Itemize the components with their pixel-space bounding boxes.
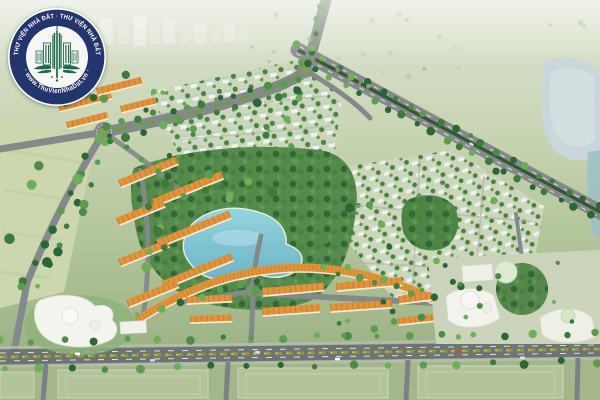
tree	[408, 104, 414, 110]
commercial-complex	[428, 250, 600, 344]
tree	[34, 363, 43, 372]
tree	[408, 290, 415, 297]
car	[335, 358, 340, 361]
tree	[437, 119, 444, 126]
tree	[510, 157, 517, 164]
tree	[374, 334, 379, 339]
tree	[347, 73, 355, 81]
tree	[341, 333, 346, 338]
tree	[441, 181, 446, 186]
tree	[139, 157, 144, 162]
tree	[254, 279, 260, 285]
tree	[160, 90, 165, 95]
tree	[174, 363, 181, 370]
tree	[521, 162, 529, 170]
tree	[237, 281, 245, 289]
tree	[155, 168, 161, 174]
tree	[288, 143, 294, 149]
tree	[42, 257, 52, 267]
tree	[469, 150, 475, 156]
car	[520, 357, 525, 360]
tree	[176, 155, 181, 160]
tree	[151, 89, 157, 95]
tree	[371, 325, 378, 332]
tree	[501, 333, 509, 341]
tree	[381, 299, 387, 305]
tree	[426, 127, 435, 136]
tree	[145, 203, 152, 210]
aerial-render: THƯ VIỆN NHÀ ĐẤT · THƯ VIỆN NHÀ ĐẤT · ww…	[0, 0, 600, 400]
tree	[415, 121, 420, 126]
tree	[431, 293, 439, 301]
tree	[141, 262, 151, 272]
tree	[79, 200, 88, 209]
tree	[136, 365, 145, 374]
tree	[417, 193, 422, 198]
tree	[443, 263, 448, 268]
tree	[150, 109, 156, 115]
tree	[199, 294, 206, 301]
tree	[397, 110, 405, 118]
tree	[217, 287, 224, 294]
tree	[366, 84, 371, 89]
tree	[122, 71, 130, 79]
tree	[280, 80, 288, 88]
tree	[569, 203, 577, 211]
tree	[458, 282, 463, 287]
tree	[268, 187, 278, 197]
tree	[283, 116, 290, 123]
tree	[69, 364, 76, 371]
tree	[385, 362, 391, 368]
tree	[53, 247, 62, 256]
tree	[385, 107, 391, 113]
tree	[251, 286, 261, 296]
tree	[72, 174, 83, 185]
tree	[207, 362, 214, 369]
tree	[202, 187, 209, 194]
tree	[68, 190, 74, 196]
tree	[197, 114, 203, 120]
tree	[566, 189, 572, 195]
shophouse-row	[190, 315, 232, 324]
tree	[556, 261, 560, 265]
tree	[476, 285, 482, 291]
tree	[27, 180, 37, 190]
tree	[95, 159, 101, 165]
tree	[501, 296, 506, 301]
tree	[107, 138, 113, 144]
tree	[158, 305, 166, 313]
tree	[140, 129, 147, 136]
tree	[356, 90, 362, 96]
tree	[62, 336, 69, 343]
tree	[159, 121, 167, 129]
tree	[419, 110, 426, 117]
tree	[485, 157, 493, 165]
tree	[219, 183, 225, 189]
tree	[35, 284, 40, 289]
tree	[167, 153, 172, 158]
tree	[495, 273, 501, 279]
tree	[263, 132, 270, 139]
tree	[490, 197, 497, 204]
tree	[559, 197, 564, 202]
tree	[326, 75, 332, 81]
tree	[214, 110, 220, 116]
tree	[4, 234, 15, 245]
tree	[381, 70, 385, 74]
tree	[170, 108, 176, 114]
tree	[34, 161, 43, 170]
tree	[94, 135, 101, 142]
tree	[345, 203, 354, 212]
tree	[358, 81, 362, 85]
tree	[321, 264, 327, 270]
tree	[292, 158, 297, 163]
tree	[263, 124, 269, 130]
tree	[146, 248, 153, 255]
tree	[380, 276, 387, 283]
tree	[198, 101, 206, 109]
car	[455, 350, 460, 353]
tree	[143, 107, 148, 112]
tree	[164, 173, 171, 180]
round-tower	[495, 261, 517, 283]
tree	[135, 312, 140, 317]
tree	[394, 283, 400, 289]
tree	[493, 149, 500, 156]
tree	[463, 315, 468, 320]
tree	[530, 184, 536, 190]
tree	[387, 244, 393, 250]
tree	[176, 176, 186, 186]
tree	[190, 125, 197, 132]
tree	[477, 303, 483, 309]
tree	[391, 318, 398, 325]
tree	[378, 221, 385, 228]
tree	[418, 314, 425, 321]
tree	[102, 123, 110, 131]
tree	[248, 335, 254, 341]
tree	[345, 319, 350, 324]
tree	[121, 133, 130, 142]
tree	[64, 223, 70, 229]
tree	[536, 174, 542, 180]
tree	[58, 207, 65, 214]
tree	[366, 201, 373, 208]
tree	[356, 274, 364, 282]
tree	[444, 137, 451, 144]
tree	[492, 168, 499, 175]
tree	[28, 339, 34, 345]
tree	[501, 168, 507, 174]
tree	[591, 329, 598, 336]
tree	[457, 66, 461, 70]
tree	[153, 227, 163, 237]
watermark-logo: THƯ VIỆN NHÀ ĐẤT · THƯ VIỆN NHÀ ĐẤT · ww…	[7, 7, 107, 107]
car	[75, 353, 80, 356]
tree	[186, 336, 195, 345]
tree	[337, 321, 342, 326]
car	[255, 351, 260, 354]
tree	[452, 361, 460, 369]
tree	[529, 330, 537, 338]
tree	[456, 334, 461, 339]
tree	[468, 133, 473, 138]
tree	[17, 283, 25, 291]
tree	[82, 153, 89, 160]
tree	[476, 139, 484, 147]
tree	[90, 338, 98, 346]
tree	[336, 272, 341, 277]
tree	[184, 104, 190, 110]
tree	[181, 193, 188, 200]
tree	[253, 98, 262, 107]
tree	[32, 260, 38, 266]
tree	[247, 87, 253, 93]
tree	[470, 332, 476, 338]
tree	[422, 67, 426, 71]
tree	[558, 357, 565, 364]
tree	[161, 244, 168, 251]
plot	[0, 372, 34, 398]
tree	[564, 332, 570, 338]
tree	[134, 116, 141, 123]
tree	[221, 334, 226, 339]
tree	[125, 336, 131, 342]
tree	[226, 191, 233, 198]
tree	[450, 279, 456, 285]
tree	[420, 288, 425, 293]
tree	[49, 226, 57, 234]
tree	[372, 98, 379, 105]
tree	[406, 74, 412, 80]
tree	[176, 117, 184, 125]
tree	[550, 178, 555, 183]
tree	[343, 83, 349, 89]
tree	[244, 178, 252, 186]
tree	[264, 82, 272, 90]
tree	[350, 360, 358, 368]
tree	[312, 364, 317, 369]
tree	[390, 309, 396, 315]
tree	[153, 336, 161, 344]
tree	[456, 143, 463, 150]
tree	[527, 279, 532, 284]
tree	[552, 300, 556, 304]
tree	[205, 170, 214, 179]
tree	[570, 319, 575, 324]
tree	[380, 88, 387, 95]
tree	[335, 68, 340, 73]
tree	[79, 208, 87, 216]
tree	[41, 240, 49, 248]
tree	[102, 366, 108, 372]
tree	[177, 299, 185, 307]
tree	[161, 180, 170, 189]
tree	[278, 362, 284, 368]
tree	[393, 96, 398, 101]
tree	[587, 211, 595, 219]
tree	[433, 258, 440, 265]
tree	[279, 335, 287, 343]
tree	[2, 366, 8, 372]
tree	[275, 93, 283, 101]
tree	[218, 95, 224, 101]
tree	[541, 189, 548, 196]
tree	[243, 363, 249, 369]
tree	[107, 133, 112, 138]
tree	[490, 359, 496, 365]
tree	[344, 264, 351, 271]
car	[150, 359, 155, 362]
plot	[418, 366, 563, 398]
tree	[89, 182, 94, 187]
tree	[296, 95, 303, 102]
tree	[303, 277, 310, 284]
tree	[312, 66, 318, 72]
tree	[520, 360, 529, 369]
tree	[406, 332, 414, 340]
tree	[452, 125, 460, 133]
tree	[420, 361, 427, 368]
tree	[580, 196, 586, 202]
tree	[513, 175, 520, 182]
tree	[296, 77, 301, 82]
tree	[314, 332, 320, 338]
tree	[118, 118, 125, 125]
tree	[372, 280, 378, 286]
tree	[322, 237, 329, 244]
tree	[231, 94, 236, 99]
tree	[293, 87, 301, 95]
tree	[124, 145, 129, 150]
tree	[232, 104, 238, 110]
tree	[439, 331, 446, 338]
